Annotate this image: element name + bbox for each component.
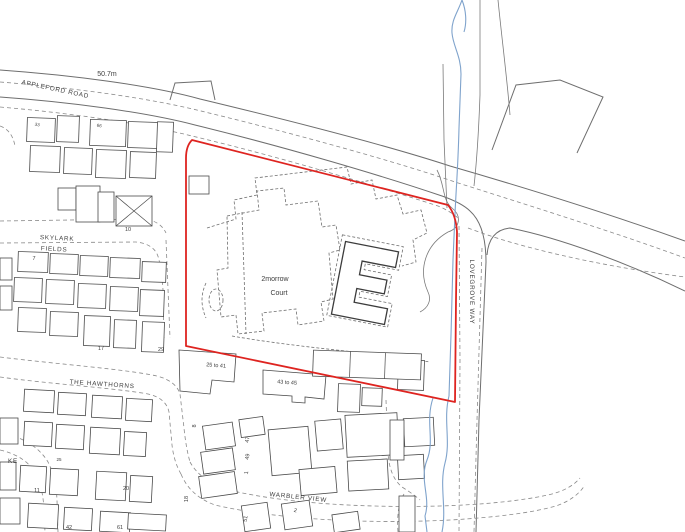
building-footprint: [315, 419, 344, 451]
building-footprint: [0, 498, 20, 524]
building-footprint: [98, 192, 114, 222]
building-footprint: [27, 118, 56, 143]
house-number-51: 51: [243, 515, 250, 522]
building-footprint: [202, 422, 235, 450]
building-footprint: [123, 431, 146, 456]
house-number-42: 42: [66, 525, 72, 531]
house-number-25: 25: [56, 457, 62, 462]
building-footprint: [125, 398, 152, 421]
building-footprint: [23, 389, 54, 413]
building-footprint: [128, 121, 159, 148]
house-number-61: 61: [117, 525, 123, 531]
building-footprint: [156, 122, 173, 153]
building-footprint: [49, 468, 78, 495]
road-label-hawthorns: THE HAWTHORNS: [69, 379, 135, 391]
building-footprint: [19, 465, 46, 492]
house-number-11: 11: [34, 488, 40, 494]
building-footprint: [0, 286, 12, 310]
house-number-10: 10: [125, 227, 131, 233]
building-footprint: [96, 149, 127, 178]
building-footprint: [140, 290, 165, 317]
building-footprint: [30, 145, 61, 172]
building-footprint: [57, 116, 80, 143]
building-footprint: [114, 320, 137, 349]
building-footprint: [80, 256, 109, 277]
building-footprint: [347, 459, 389, 491]
building-footprint: [281, 500, 312, 530]
road-label-partial: KE: [8, 458, 18, 465]
building-footprint: [58, 188, 76, 210]
building-footprint: [199, 472, 238, 499]
road-label-skylark-1: SKYLARK: [40, 234, 75, 243]
building-footprint: [55, 424, 84, 449]
road-label-lovegrove: LOVEGROVE WAY: [468, 260, 475, 325]
building-footprint: [18, 308, 47, 333]
house-number-18: 18: [184, 496, 190, 502]
building-footprint: [110, 287, 139, 312]
building-footprint: [332, 511, 360, 532]
site-name-line2: Court: [270, 290, 287, 297]
building-footprint: [46, 280, 75, 305]
building-footprint: [78, 284, 107, 309]
building-footprint: [0, 258, 12, 280]
spot-height-label: 50.7m: [97, 71, 117, 78]
building-footprint: [90, 119, 127, 146]
building-with-cross: [116, 196, 152, 226]
house-number-17: 17: [98, 346, 104, 352]
building-footprint: [0, 462, 16, 490]
building-footprint: [142, 262, 167, 283]
building-footprint: [27, 503, 58, 529]
house-number-1: 1: [244, 471, 250, 475]
building-footprint: [239, 416, 265, 437]
building-footprint: [23, 421, 52, 446]
site-plan-map: 50.7m APPLEFORD ROAD SKYLARK FIELDS THE …: [0, 0, 685, 532]
map-canvas: 50.7m APPLEFORD ROAD SKYLARK FIELDS THE …: [0, 0, 685, 532]
building-footprint: [362, 388, 383, 407]
house-number-49: 49: [245, 453, 252, 460]
house-number-8: 8: [192, 424, 198, 427]
road-label-appleford: APPLEFORD ROAD: [21, 79, 90, 100]
building-2morrow-court: [331, 242, 398, 325]
building-footprint: [110, 257, 141, 278]
house-number-7: 7: [32, 256, 35, 262]
house-number-20: 20: [123, 486, 129, 492]
building-footprint: [338, 384, 361, 413]
building-footprint: [64, 148, 93, 175]
building-footprint: [201, 448, 236, 474]
building-footprint: [299, 466, 337, 495]
building-footprint: [83, 316, 110, 347]
building-25-to-41: [179, 350, 236, 394]
building-footprint: [18, 251, 49, 272]
building-footprint: [76, 186, 100, 222]
building-footprint: [50, 312, 79, 337]
road-label-skylark-2: FIELDS: [41, 245, 68, 253]
building-footprint: [89, 427, 120, 455]
building-footprint: [130, 152, 157, 179]
site-name-line1: 2morrow: [261, 276, 289, 283]
building-footprint: [50, 254, 79, 275]
building-footprint: [0, 418, 18, 444]
house-number-29: 29: [158, 347, 164, 353]
building-footprint: [128, 513, 167, 531]
building-footprint: [14, 278, 43, 303]
building-footprint: [390, 420, 404, 460]
house-number-47: 47: [245, 436, 252, 443]
building-footprint: [99, 511, 130, 532]
building-footprint: [91, 395, 122, 419]
building-footprint: [57, 392, 86, 415]
building-footprint: [129, 475, 152, 502]
building-footprint: [268, 426, 312, 475]
building-site-outbuilding: [189, 176, 209, 194]
building-footprint: [399, 496, 415, 532]
